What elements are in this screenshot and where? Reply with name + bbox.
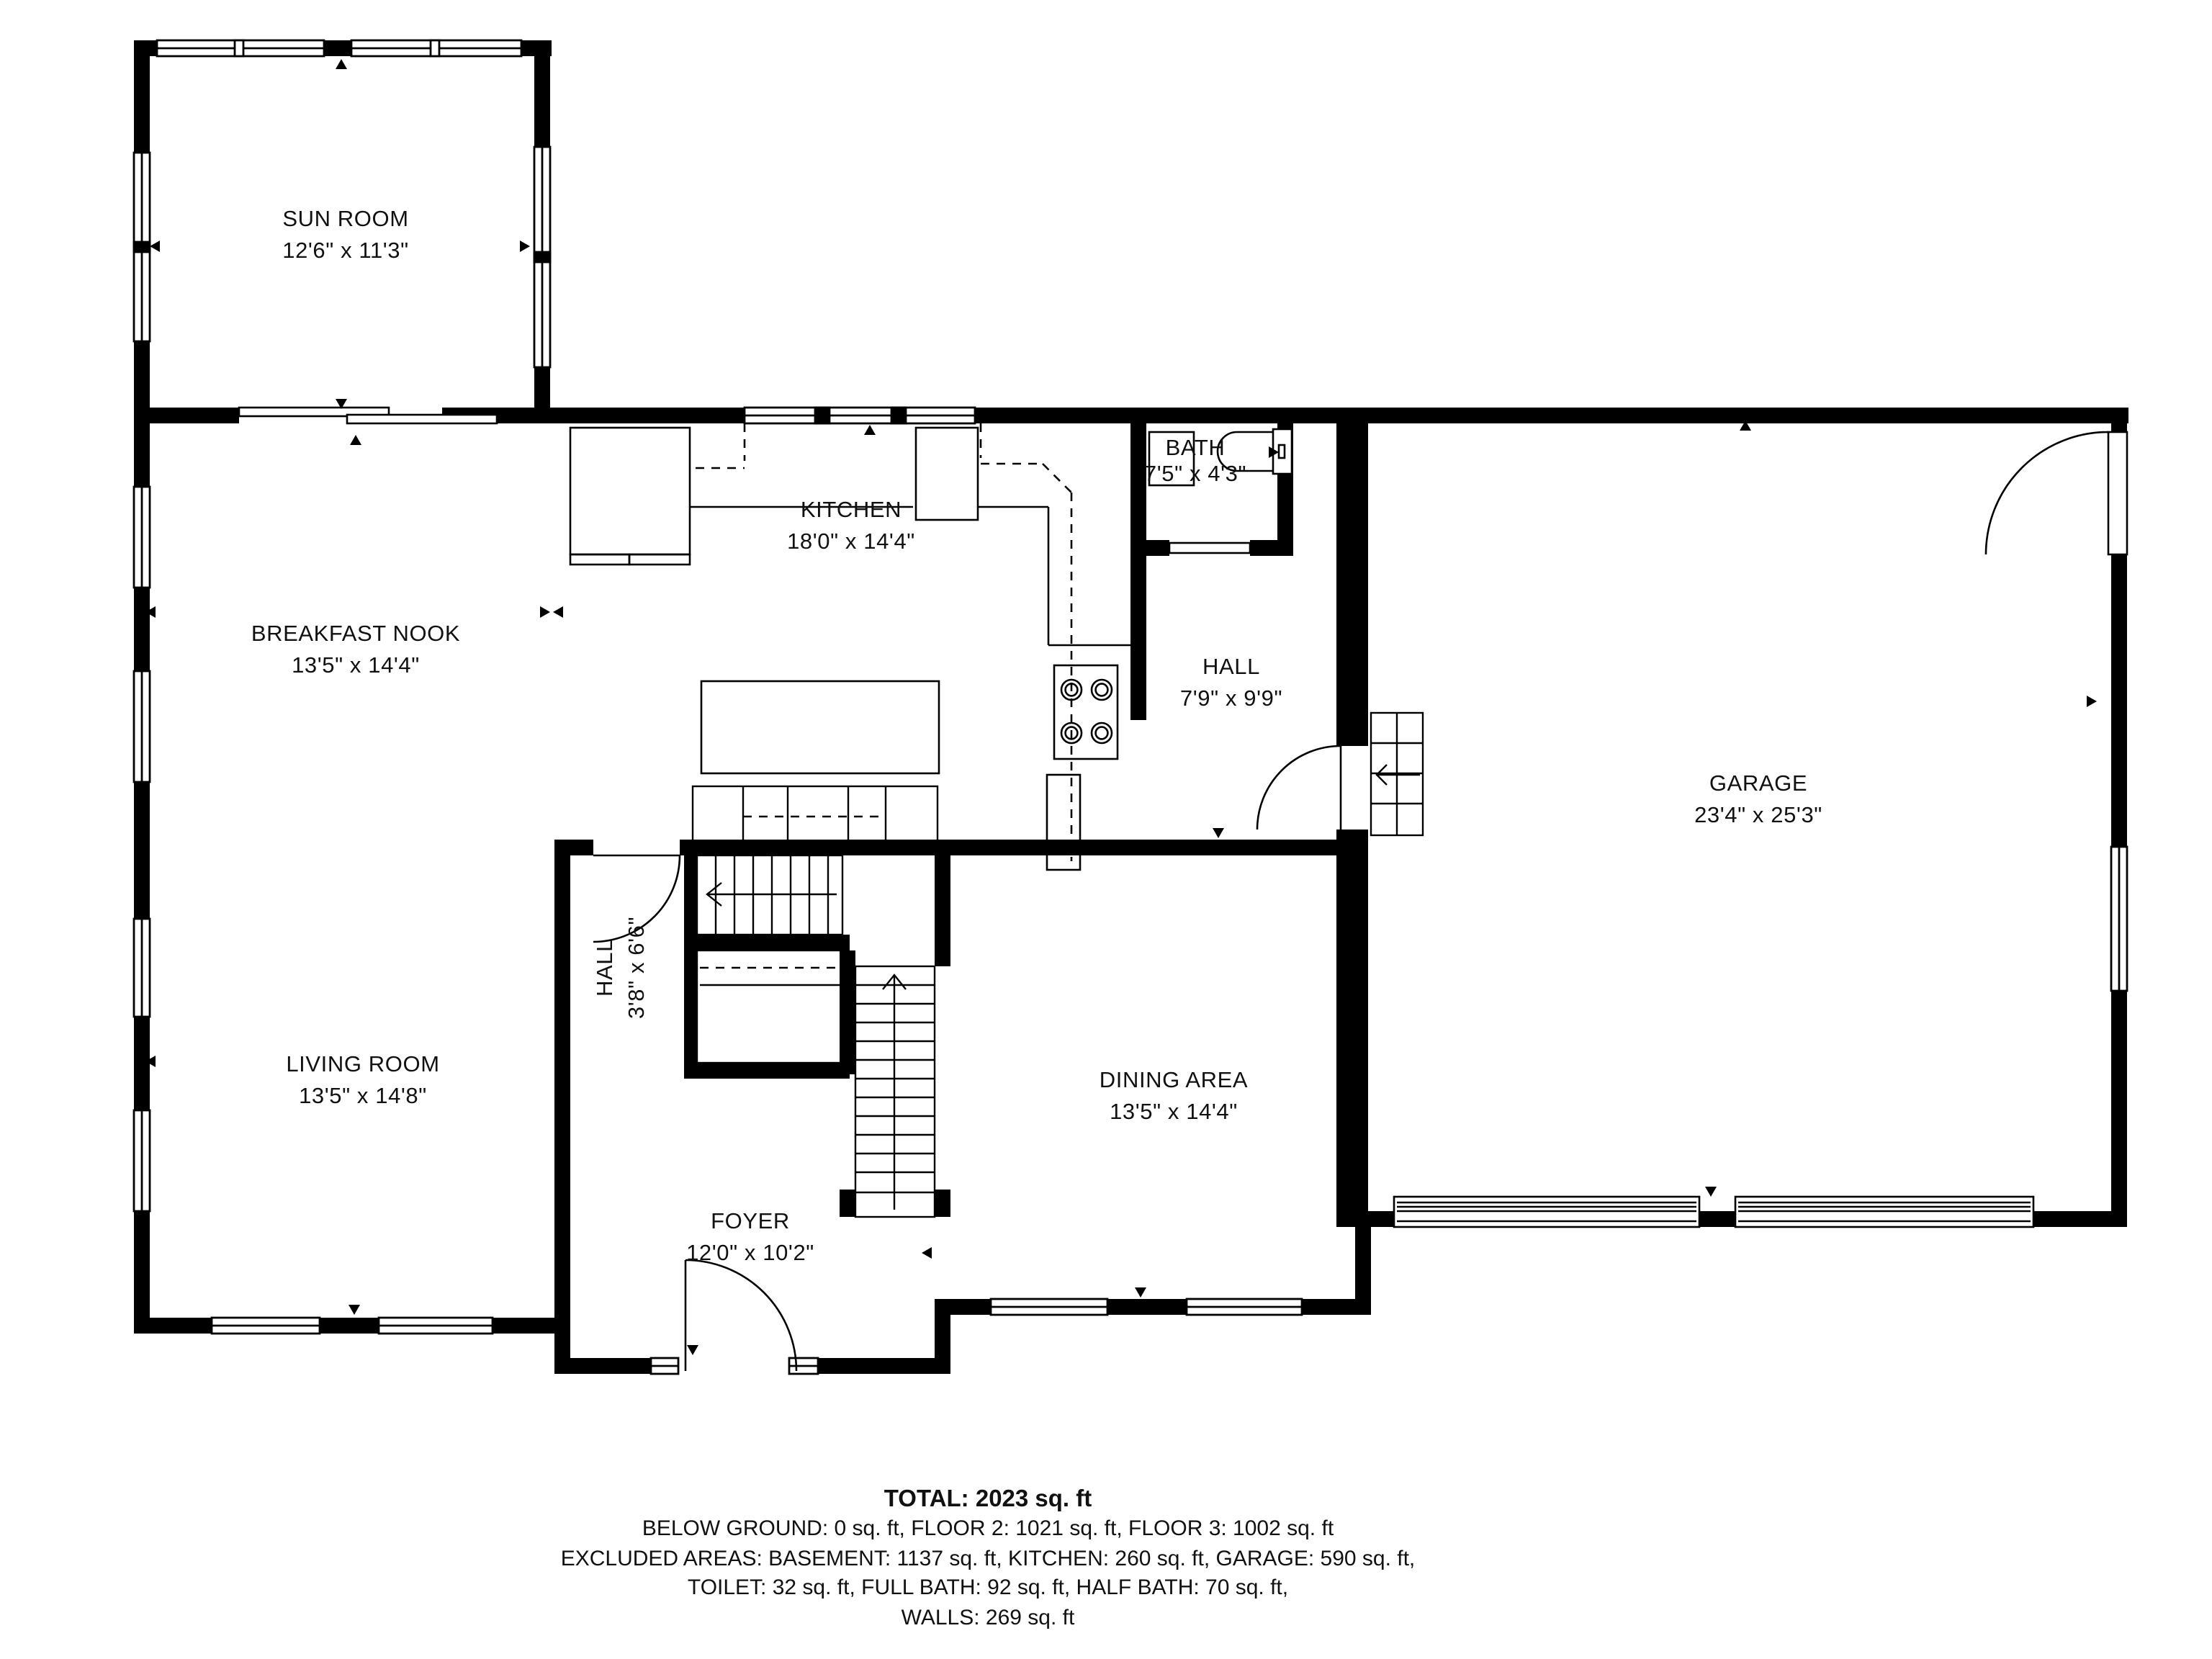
window — [991, 1299, 1107, 1315]
window — [534, 147, 550, 367]
wall-segment — [2033, 1211, 2127, 1227]
refrigerator — [570, 428, 690, 565]
marker-up — [336, 59, 347, 69]
kitchen-sink — [916, 428, 978, 520]
room-name: FOYER — [686, 1207, 814, 1238]
excluded-areas-text: EXCLUDED AREAS: BASEMENT: 1137 sq. ft, K… — [52, 1545, 1924, 1574]
wall-segment — [684, 1063, 850, 1079]
wall-segment — [1107, 1299, 1187, 1315]
direction-markers — [145, 59, 2097, 1355]
window — [134, 671, 150, 782]
wall-segment — [2111, 991, 2127, 1227]
room-dims: 13'5" x 14'4" — [251, 651, 460, 683]
room-dims: 12'0" x 10'2" — [686, 1238, 814, 1270]
wall-segment — [975, 408, 2128, 423]
area-summary: TOTAL: 2023 sq. ft BELOW GROUND: 0 sq. f… — [52, 1485, 1924, 1659]
bath-areas-text: TOILET: 32 sq. ft, FULL BATH: 92 sq. ft,… — [52, 1574, 1924, 1604]
marker-up — [864, 425, 876, 435]
wall-segment — [1368, 1211, 1394, 1227]
wall-segment — [134, 1318, 212, 1334]
marker-down — [349, 1305, 360, 1315]
marker-down — [1213, 828, 1224, 838]
walls-area-text: WALLS: 269 sq. ft — [52, 1604, 1924, 1633]
room-dims: 3'8" x 6'6" — [622, 917, 654, 1019]
room-label-bath: BATH 7'5" x 4'3" — [1144, 436, 1246, 488]
room-name: KITCHEN — [787, 495, 915, 527]
room-label-breakfast-nook: BREAKFAST NOOK 13'5" x 14'4" — [251, 619, 460, 683]
front-door — [685, 1260, 796, 1371]
room-dims: 13'5" x 14'4" — [1100, 1097, 1248, 1129]
room-label-living-room: LIVING ROOM 13'5" x 14'8" — [286, 1050, 439, 1113]
room-label-hall-small: HALL 3'8" x 6'6" — [590, 917, 654, 1019]
garage-door — [1394, 1197, 1699, 1227]
stairs-overhead-row — [693, 786, 938, 847]
room-name: GARAGE — [1694, 769, 1822, 801]
wall-segment — [554, 847, 570, 1374]
marker-left — [922, 1247, 932, 1259]
wall-segment — [684, 935, 850, 950]
wall-segment — [1302, 1299, 1371, 1315]
marker-right — [540, 606, 550, 618]
wall-segment — [935, 1190, 950, 1217]
wall-segment — [2111, 554, 2127, 847]
marker-right — [2087, 696, 2097, 707]
wall-segment — [935, 1299, 991, 1315]
wall-segment — [2111, 408, 2127, 432]
wall-segment — [1336, 829, 1368, 1227]
wall-segment — [134, 782, 150, 919]
wall-segment — [935, 840, 950, 966]
room-dims: 7'5" x 4'3" — [1144, 462, 1246, 488]
floor-plan-page: SUN ROOM 12'6" x 11'3" KITCHEN 18'0" x 1… — [0, 0, 2212, 1659]
wall-segment — [134, 408, 150, 487]
window — [2111, 847, 2127, 991]
room-name: BREAKFAST NOOK — [251, 619, 460, 651]
wall-segment — [134, 40, 150, 153]
wall-segment — [134, 1017, 150, 1110]
kitchen-fixtures — [570, 423, 1130, 870]
wall-segment — [684, 840, 697, 1079]
garage-hall-door — [1257, 746, 1341, 829]
window — [134, 919, 150, 1017]
wall-segment — [818, 1358, 950, 1374]
room-label-sun-room: SUN ROOM 12'6" x 11'3" — [282, 204, 409, 268]
window — [157, 40, 324, 56]
room-name: SUN ROOM — [282, 204, 409, 236]
marker-down — [687, 1345, 698, 1355]
room-label-dining-area: DINING AREA 13'5" x 14'4" — [1100, 1066, 1248, 1129]
room-name: HALL — [590, 917, 622, 1019]
room-label-hall-upper: HALL 7'9" x 9'9" — [1180, 652, 1282, 716]
marker-down — [1705, 1187, 1717, 1197]
wall-segment — [324, 40, 351, 56]
stove — [1054, 665, 1118, 759]
pocket-door — [1169, 543, 1250, 553]
marker-left — [553, 606, 563, 618]
room-dims: 23'4" x 25'3" — [1694, 801, 1822, 832]
wall-segment — [554, 1358, 651, 1374]
window — [379, 1318, 493, 1334]
room-label-foyer: FOYER 12'0" x 10'2" — [686, 1207, 814, 1270]
garage-steps — [1371, 713, 1423, 835]
floor-plan-stage: SUN ROOM 12'6" x 11'3" KITCHEN 18'0" x 1… — [0, 0, 2212, 1659]
wall-segment — [1699, 1211, 1735, 1227]
wall-segment — [1146, 540, 1169, 556]
room-name: LIVING ROOM — [286, 1050, 439, 1082]
room-label-kitchen: KITCHEN 18'0" x 14'4" — [787, 495, 915, 559]
wall-segment — [840, 1190, 855, 1217]
window — [789, 1358, 818, 1374]
stairs-lower-flight — [855, 966, 935, 1217]
window — [134, 487, 150, 588]
window — [745, 408, 975, 423]
wall-segment — [134, 588, 150, 671]
window — [134, 1110, 150, 1211]
wall-segment — [134, 1211, 150, 1334]
floors-area-text: BELOW GROUND: 0 sq. ft, FLOOR 2: 1021 sq… — [52, 1515, 1924, 1545]
under-stair-closet — [697, 950, 842, 1063]
window — [651, 1358, 678, 1374]
stairs — [693, 713, 1423, 1217]
marker-left — [150, 240, 160, 252]
room-label-garage: GARAGE 23'4" x 25'3" — [1694, 769, 1822, 832]
wall-segment — [320, 1318, 379, 1334]
marker-up — [350, 435, 361, 445]
window — [212, 1318, 320, 1334]
window — [1187, 1299, 1302, 1315]
room-dims: 13'5" x 14'8" — [286, 1082, 439, 1113]
room-dims: 7'9" x 9'9" — [1180, 684, 1282, 716]
marker-right — [520, 240, 530, 252]
marker-down — [1135, 1287, 1146, 1298]
window — [134, 153, 150, 341]
wall-segment — [534, 40, 550, 147]
walls — [134, 40, 2128, 1374]
room-name: BATH — [1144, 436, 1246, 462]
base-cabinet — [1047, 775, 1080, 870]
room-name: DINING AREA — [1100, 1066, 1248, 1097]
stairs-upper-flight — [697, 855, 842, 935]
kitchen-island — [701, 681, 939, 773]
upper-cabinets-dashed — [696, 423, 1071, 861]
total-area-text: TOTAL: 2023 sq. ft — [52, 1485, 1924, 1515]
garage-door — [1735, 1197, 2033, 1227]
garage-side-door — [1986, 432, 2127, 554]
window — [351, 40, 521, 56]
room-dims: 18'0" x 14'4" — [787, 527, 915, 559]
room-name: HALL — [1180, 652, 1282, 684]
room-dims: 12'6" x 11'3" — [282, 236, 409, 268]
